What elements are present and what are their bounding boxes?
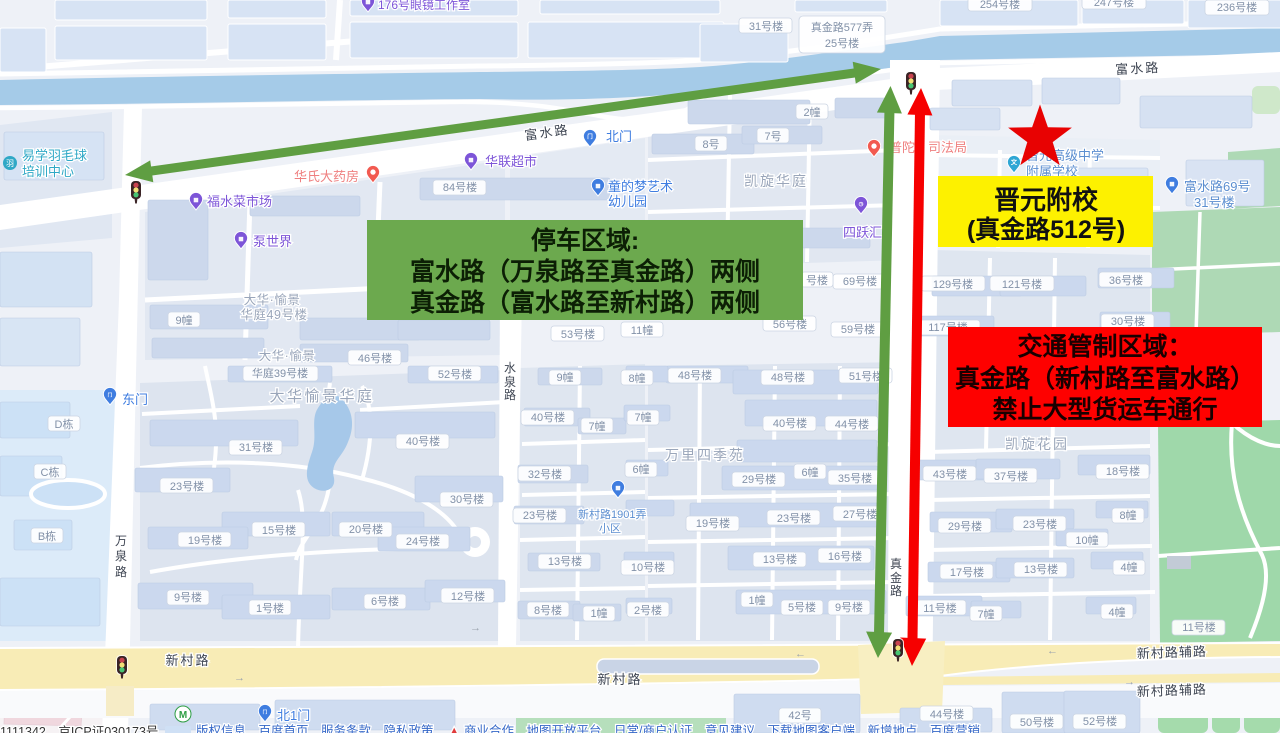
svg-text:9号楼: 9号楼 <box>174 590 202 604</box>
svg-text:44号楼: 44号楼 <box>930 707 964 721</box>
svg-text:13号楼: 13号楼 <box>763 552 797 566</box>
svg-text:大华·愉景: 大华·愉景 <box>259 348 316 363</box>
svg-text:交通管制区域：: 交通管制区域： <box>1017 332 1192 361</box>
svg-text:254号楼: 254号楼 <box>980 0 1020 11</box>
svg-text:40号楼: 40号楼 <box>531 410 565 424</box>
svg-text:文: 文 <box>1011 159 1018 167</box>
svg-text:大华·愉景: 大华·愉景 <box>244 292 301 307</box>
svg-text:▩: ▩ <box>615 486 620 492</box>
svg-text:6幢: 6幢 <box>801 465 818 479</box>
svg-text:凯旋花园: 凯旋花园 <box>1005 436 1069 452</box>
svg-text:30号楼: 30号楼 <box>1111 314 1145 328</box>
svg-text:C栋: C栋 <box>41 465 60 479</box>
svg-text:8号: 8号 <box>702 138 719 151</box>
svg-text:8号楼: 8号楼 <box>534 603 562 617</box>
svg-text:46号楼: 46号楼 <box>358 351 392 365</box>
svg-text:16号楼: 16号楼 <box>828 549 862 563</box>
svg-text:金: 金 <box>890 570 902 585</box>
svg-text:新村路辅路: 新村路辅路 <box>1137 644 1207 661</box>
svg-text:▩: ▩ <box>1169 182 1174 188</box>
svg-text:12号楼: 12号楼 <box>451 589 485 603</box>
svg-text:B栋: B栋 <box>38 529 56 543</box>
svg-text:43号楼: 43号楼 <box>933 467 967 481</box>
svg-text:晋元附校: 晋元附校 <box>994 185 1099 215</box>
svg-text:23号楼: 23号楼 <box>777 511 811 525</box>
svg-text:门: 门 <box>263 709 268 716</box>
svg-text:华联超市: 华联超市 <box>485 154 537 169</box>
svg-text:29号楼: 29号楼 <box>948 519 982 533</box>
svg-text:7幢: 7幢 <box>588 419 605 433</box>
svg-text:普陀 司法局: 普陀 司法局 <box>889 140 967 155</box>
svg-text:泉: 泉 <box>504 375 516 389</box>
svg-text:▩: ▩ <box>193 198 198 204</box>
svg-text:▩: ▩ <box>595 184 600 190</box>
svg-text:53号楼: 53号楼 <box>561 327 595 341</box>
svg-text:→: → <box>470 622 481 634</box>
svg-text:247号楼: 247号楼 <box>1094 0 1134 9</box>
svg-text:▩: ▩ <box>468 158 473 164</box>
svg-text:四跃汇: 四跃汇 <box>843 225 882 240</box>
svg-text:富水路（万泉路至真金路）两侧: 富水路（万泉路至真金路）两侧 <box>410 257 760 286</box>
svg-text:18号楼: 18号楼 <box>1106 464 1140 478</box>
svg-text:5号楼: 5号楼 <box>788 600 816 614</box>
svg-text:1幢: 1幢 <box>590 606 607 620</box>
svg-text:大华愉景华庭: 大华愉景华庭 <box>269 388 374 405</box>
svg-text:易学羽毛球: 易学羽毛球 <box>22 148 87 163</box>
svg-text:37号楼: 37号楼 <box>994 469 1028 483</box>
svg-text:32号楼: 32号楼 <box>528 467 562 481</box>
svg-text:真金路577弄: 真金路577弄 <box>811 20 873 34</box>
svg-text:万: 万 <box>115 534 127 548</box>
svg-text:←: ← <box>795 648 806 660</box>
svg-text:20号楼: 20号楼 <box>349 522 383 536</box>
svg-text:凯旋华庭: 凯旋华庭 <box>744 173 808 189</box>
svg-text:19号楼: 19号楼 <box>696 516 730 530</box>
svg-text:4幢: 4幢 <box>1108 605 1125 619</box>
svg-text:泵世界: 泵世界 <box>253 234 292 249</box>
svg-text:真: 真 <box>890 557 902 571</box>
svg-text:27号楼: 27号楼 <box>843 507 877 521</box>
svg-text:新村路: 新村路 <box>165 653 210 668</box>
svg-text:9幢: 9幢 <box>556 370 573 384</box>
svg-text:▩: ▩ <box>238 237 243 243</box>
svg-text:1号楼: 1号楼 <box>256 601 284 615</box>
svg-text:路: 路 <box>115 564 127 579</box>
svg-text:23号楼: 23号楼 <box>523 508 557 522</box>
svg-text:236号楼: 236号楼 <box>1217 0 1257 14</box>
svg-text:35号楼: 35号楼 <box>838 471 872 485</box>
svg-text:停车区域:: 停车区域: <box>531 226 639 255</box>
svg-text:52号楼: 52号楼 <box>1083 714 1117 728</box>
svg-text:8幢: 8幢 <box>628 371 645 385</box>
svg-text:水: 水 <box>504 361 516 375</box>
svg-text:19号楼: 19号楼 <box>188 533 222 547</box>
svg-text:6幢: 6幢 <box>632 462 649 476</box>
svg-text:10幢: 10幢 <box>1075 533 1098 547</box>
svg-text:幼儿园: 幼儿园 <box>608 194 647 209</box>
svg-text:泉: 泉 <box>115 549 127 563</box>
svg-text:华庭49号楼: 华庭49号楼 <box>241 307 308 322</box>
svg-text:10号楼: 10号楼 <box>631 560 665 574</box>
svg-text:40号楼: 40号楼 <box>773 416 807 430</box>
svg-text:北1门: 北1门 <box>277 708 310 723</box>
svg-text:→: → <box>234 672 245 684</box>
svg-text:小区: 小区 <box>599 522 621 535</box>
svg-text:29号楼: 29号楼 <box>742 472 776 486</box>
svg-text:7号: 7号 <box>764 130 781 143</box>
svg-text:48号楼: 48号楼 <box>678 368 712 382</box>
svg-text:69号楼: 69号楼 <box>843 274 877 288</box>
svg-text:真金路（富水路至新村路）两侧: 真金路（富水路至新村路）两侧 <box>410 288 760 317</box>
svg-text:11号楼: 11号楼 <box>1182 620 1215 634</box>
svg-text:9号楼: 9号楼 <box>835 600 863 614</box>
svg-text:121号楼: 121号楼 <box>1002 277 1042 291</box>
svg-text:11幢: 11幢 <box>631 323 653 337</box>
svg-text:华氏大药房: 华氏大药房 <box>294 169 359 184</box>
svg-text:8幢: 8幢 <box>1119 508 1136 522</box>
svg-text:富水路: 富水路 <box>1115 60 1161 77</box>
svg-text:◷: ◷ <box>859 202 864 208</box>
svg-text:M: M <box>179 710 187 721</box>
svg-text:129号楼: 129号楼 <box>933 277 973 291</box>
svg-text:福水菜市场: 福水菜市场 <box>207 194 272 209</box>
svg-text:→: → <box>1124 676 1135 688</box>
svg-text:15号楼: 15号楼 <box>262 523 296 537</box>
svg-text:11号楼: 11号楼 <box>923 601 956 615</box>
svg-text:华庭39号楼: 华庭39号楼 <box>252 366 308 380</box>
svg-text:商业合作 地图开放平台 日常/商户认证 意见建议 下载地图客: 商业合作 地图开放平台 日常/商户认证 意见建议 下载地图客户端 新增地点 百度… <box>464 723 980 733</box>
svg-text:176号眼镜工作室: 176号眼镜工作室 <box>378 0 470 12</box>
svg-text:北门: 北门 <box>606 129 632 144</box>
svg-text:路: 路 <box>504 387 516 402</box>
svg-text:24号楼: 24号楼 <box>406 534 440 548</box>
svg-text:23号楼: 23号楼 <box>170 479 204 493</box>
svg-text:富水路69号: 富水路69号 <box>1184 179 1250 194</box>
svg-text:52号楼: 52号楼 <box>438 367 472 381</box>
svg-text:2号楼: 2号楼 <box>634 603 662 617</box>
svg-text:2幢: 2幢 <box>803 105 820 119</box>
svg-text:51号楼: 51号楼 <box>849 369 883 383</box>
svg-text:59号楼: 59号楼 <box>841 322 875 336</box>
svg-text:84号楼: 84号楼 <box>443 180 477 194</box>
svg-text:东门: 东门 <box>122 392 148 407</box>
svg-text:50号楼: 50号楼 <box>1020 715 1054 729</box>
svg-text:真金路（新村路至富水路）: 真金路（新村路至富水路） <box>955 364 1255 393</box>
svg-text:号楼: 号楼 <box>806 273 828 287</box>
svg-text:9幢: 9幢 <box>175 313 192 327</box>
svg-text:23号楼: 23号楼 <box>1023 517 1057 531</box>
svg-text:17号楼: 17号楼 <box>950 565 984 579</box>
svg-text:31号楼: 31号楼 <box>749 19 783 33</box>
svg-text:31号楼: 31号楼 <box>1194 195 1234 210</box>
svg-text:门: 门 <box>108 392 113 399</box>
svg-text:40号楼: 40号楼 <box>406 434 440 448</box>
svg-text:新村路辅路: 新村路辅路 <box>1137 682 1207 699</box>
svg-text:培训中心: 培训中心 <box>22 164 74 179</box>
svg-text:1111342 京ICP证030173号: 1111342 京ICP证030173号 <box>0 725 158 733</box>
svg-text:31号楼: 31号楼 <box>239 440 273 454</box>
svg-text:13号楼: 13号楼 <box>1024 562 1058 576</box>
svg-text:4幢: 4幢 <box>1120 560 1137 574</box>
svg-text:禁止大型货运车通行: 禁止大型货运车通行 <box>992 395 1217 424</box>
svg-text:童的梦艺术: 童的梦艺术 <box>608 179 673 194</box>
svg-text:版权信息 百度首页 服务条款 隐私政策: 版权信息 百度首页 服务条款 隐私政策 <box>196 723 434 733</box>
svg-text:7幢: 7幢 <box>634 410 651 424</box>
svg-text:新村路1901弄: 新村路1901弄 <box>578 507 646 521</box>
svg-text:新村路: 新村路 <box>597 672 642 687</box>
svg-text:25号楼: 25号楼 <box>825 36 859 50</box>
svg-text:48号楼: 48号楼 <box>771 370 805 384</box>
svg-text:(真金路512号): (真金路512号) <box>967 215 1125 244</box>
svg-text:44号楼: 44号楼 <box>835 417 869 431</box>
svg-text:路: 路 <box>890 583 902 598</box>
svg-text:13号楼: 13号楼 <box>548 554 582 568</box>
svg-text:6号楼: 6号楼 <box>371 594 399 608</box>
svg-text:▲: ▲ <box>448 724 460 733</box>
svg-text:1幢: 1幢 <box>748 593 765 607</box>
svg-text:D栋: D栋 <box>55 417 74 431</box>
svg-text:▩: ▩ <box>365 0 370 6</box>
svg-text:←: ← <box>1047 645 1058 657</box>
svg-text:万里四季苑: 万里四季苑 <box>665 447 745 463</box>
svg-text:7幢: 7幢 <box>977 607 994 621</box>
svg-text:羽: 羽 <box>6 159 14 168</box>
svg-text:42号: 42号 <box>788 709 811 722</box>
svg-text:30号楼: 30号楼 <box>450 492 484 506</box>
svg-text:36号楼: 36号楼 <box>1109 273 1143 287</box>
